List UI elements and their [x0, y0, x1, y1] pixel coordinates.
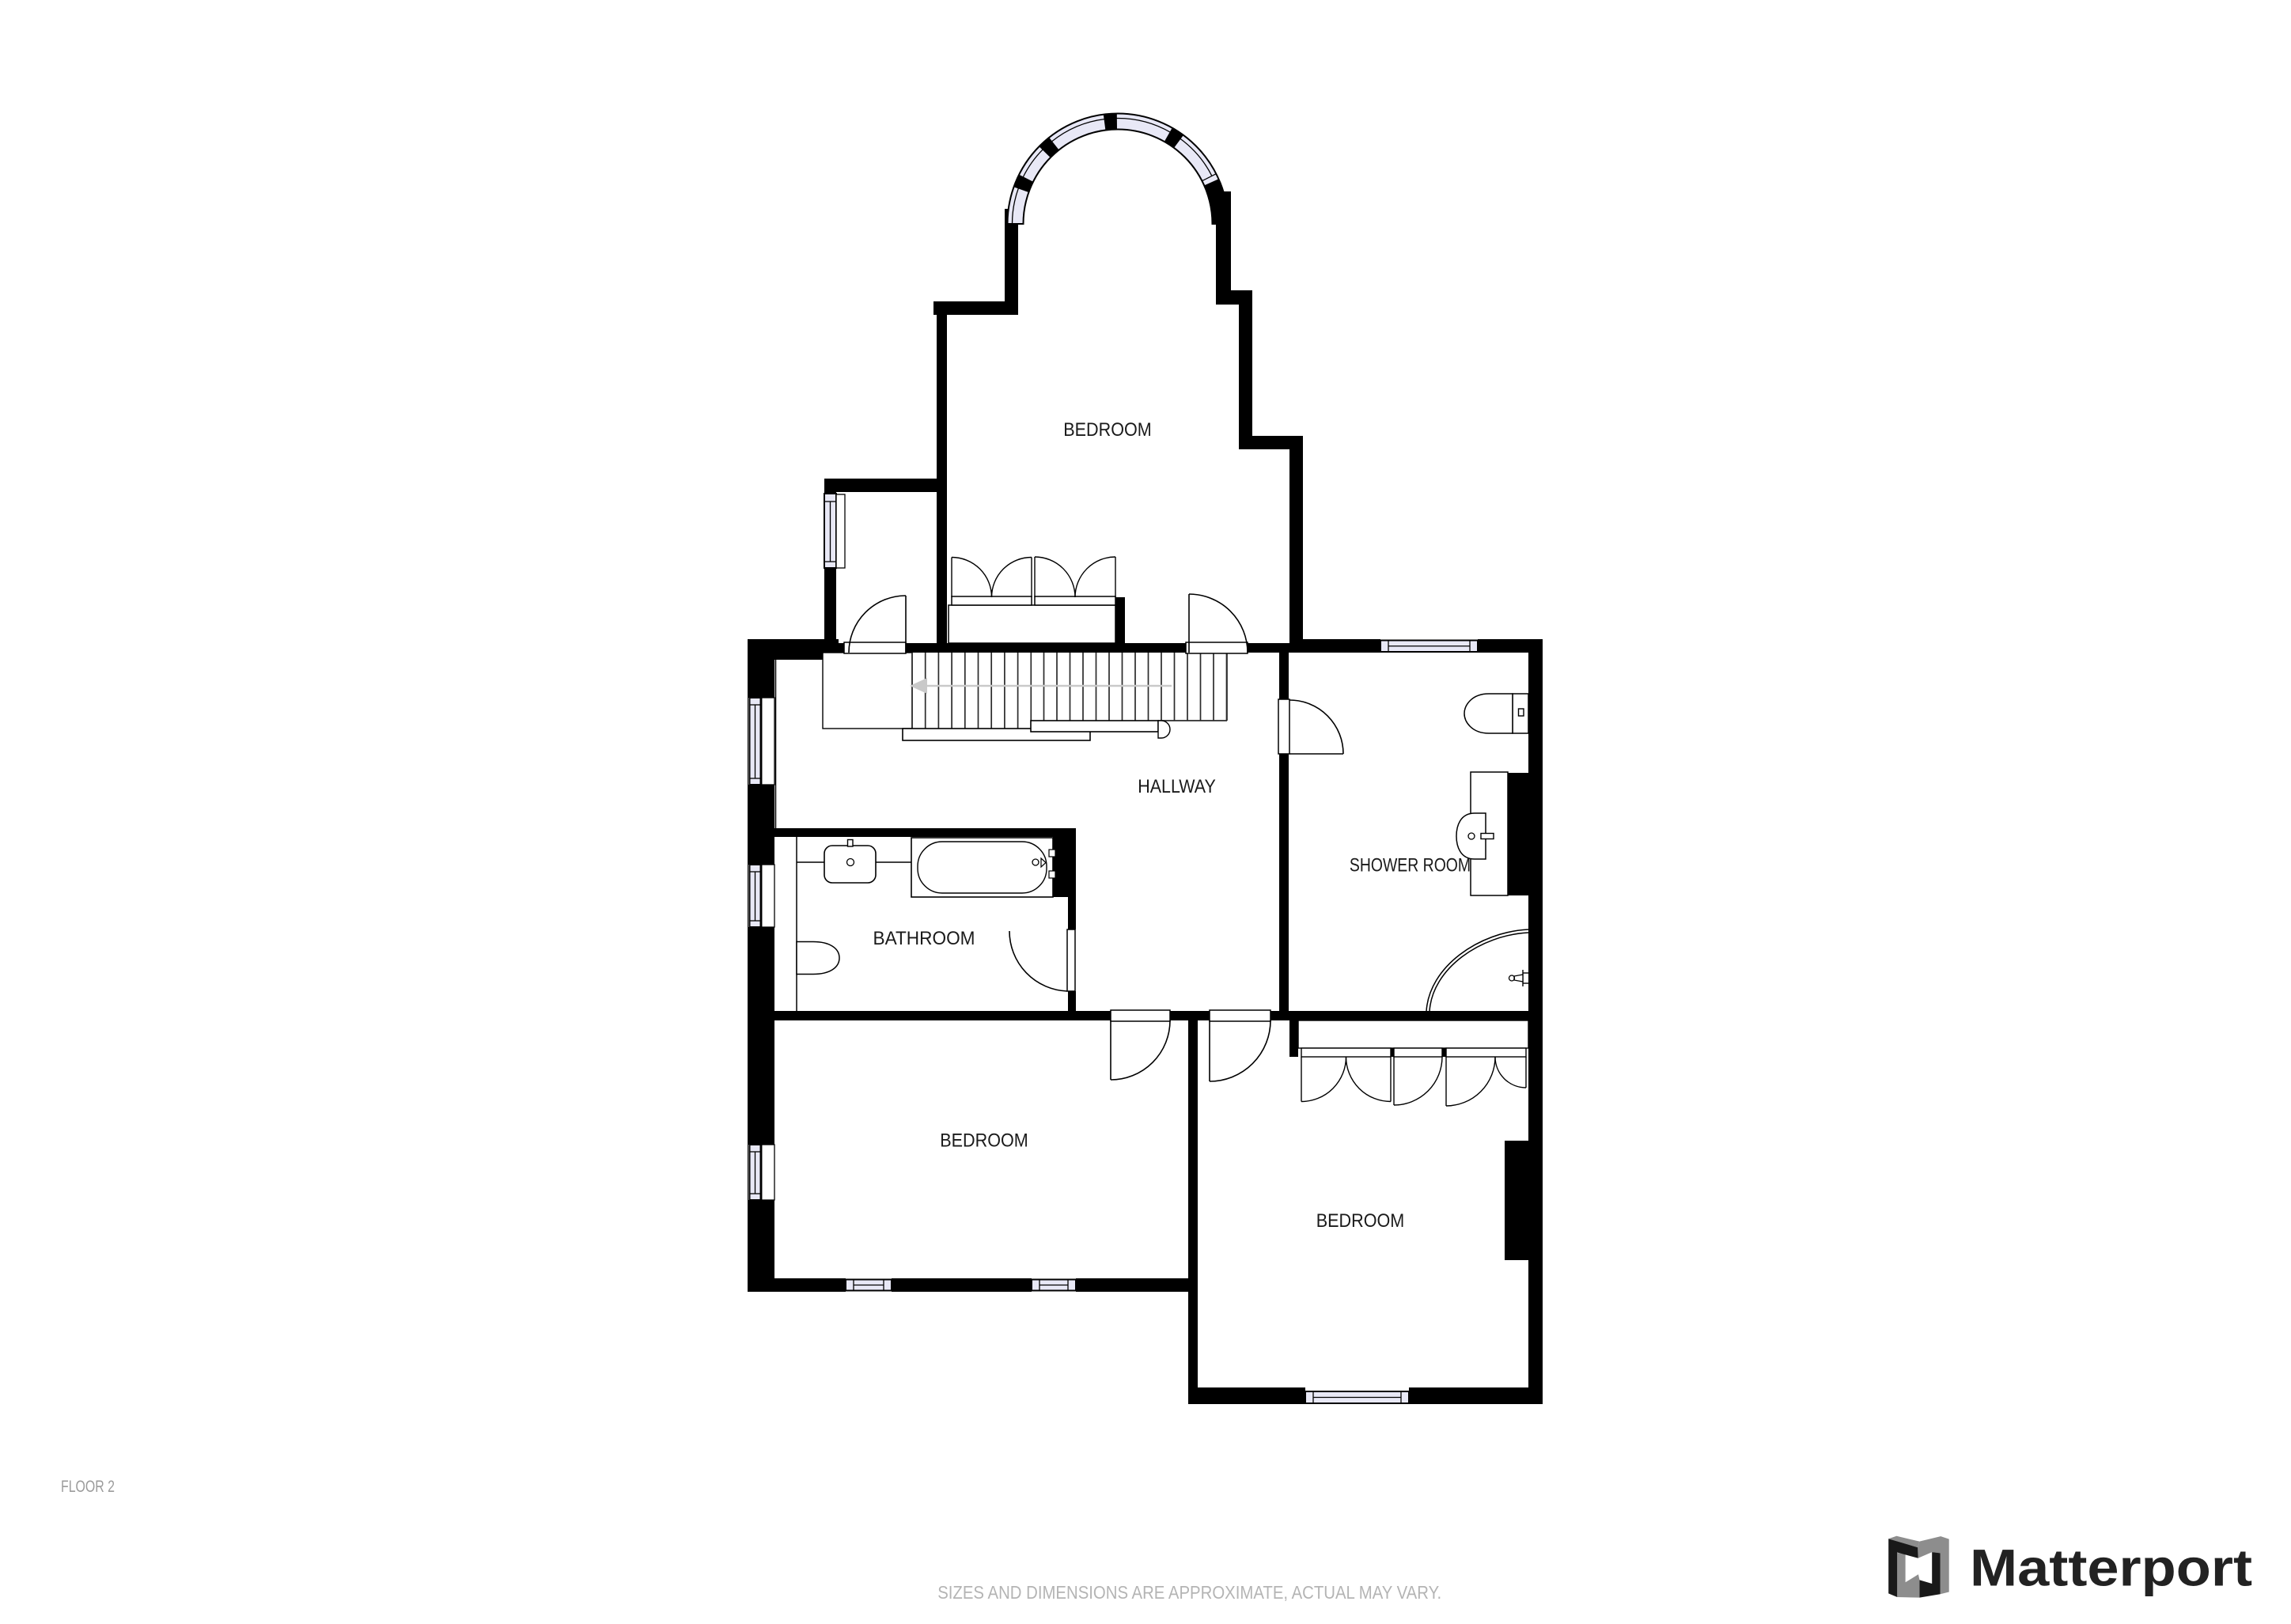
svg-text:FLOOR 2: FLOOR 2 — [61, 1478, 115, 1496]
svg-text:SHOWER ROOM: SHOWER ROOM — [1350, 855, 1471, 876]
svg-text:SIZES AND DIMENSIONS ARE APPRO: SIZES AND DIMENSIONS ARE APPROXIMATE, AC… — [937, 1582, 1441, 1603]
svg-text:HALLWAY: HALLWAY — [1138, 776, 1216, 797]
svg-text:BEDROOM: BEDROOM — [1063, 419, 1152, 441]
svg-text:Matterport: Matterport — [1970, 1539, 2252, 1597]
svg-text:BEDROOM: BEDROOM — [1316, 1210, 1405, 1232]
svg-text:BEDROOM: BEDROOM — [940, 1130, 1028, 1152]
svg-text:BATHROOM: BATHROOM — [873, 928, 975, 949]
